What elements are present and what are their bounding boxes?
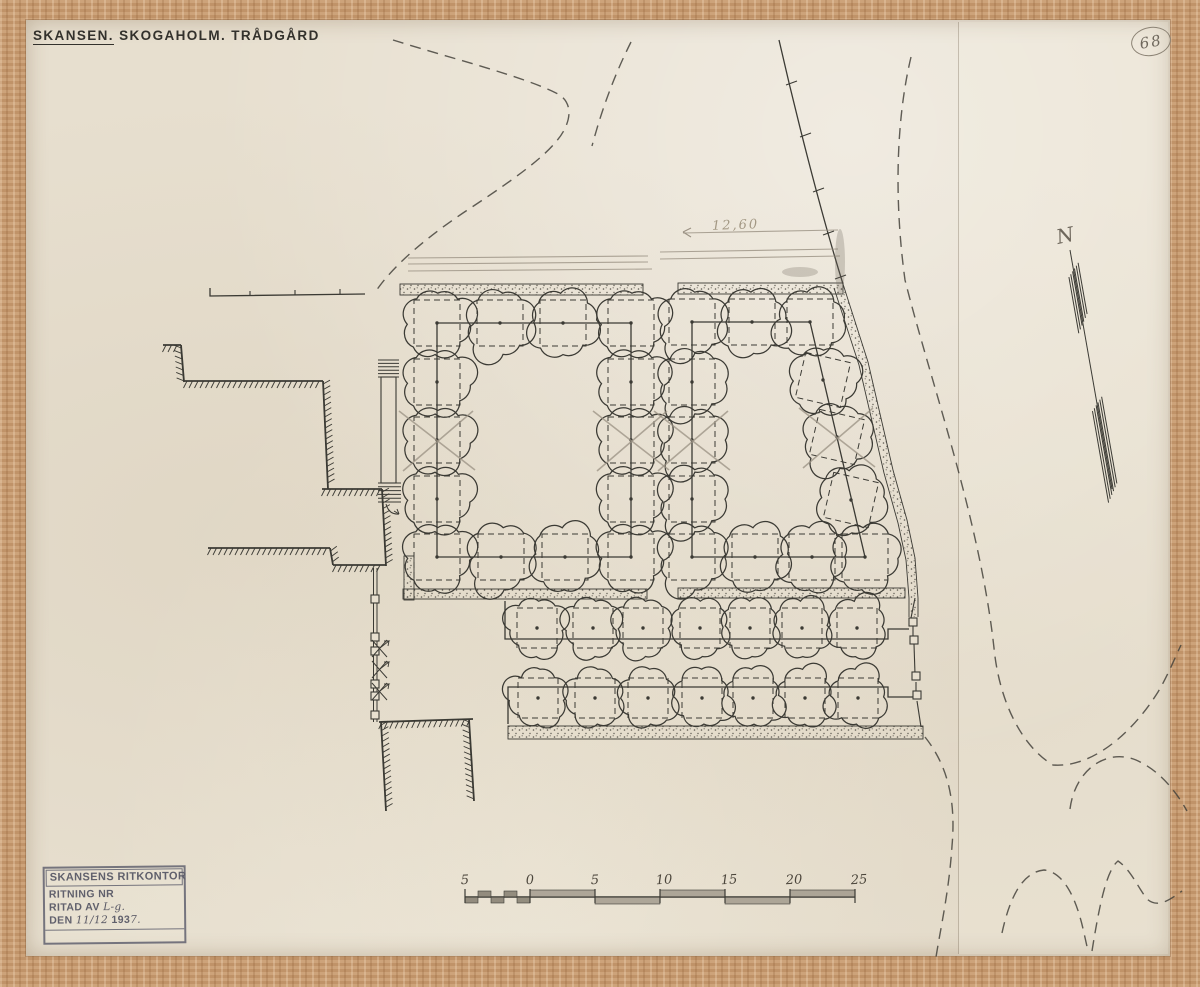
stamp-date-year-print: 193: [111, 914, 130, 926]
garden-plan-drawing: N 50510152025: [0, 0, 1200, 987]
stamp-date-day: 11/12: [76, 914, 108, 926]
stamp-empty-row: [45, 929, 184, 942]
tree: [467, 523, 536, 599]
drawing-office-stamp: SKANSENS RITKONTOR RITNING NR RITAD AV L…: [43, 865, 187, 944]
scale-label: 0: [525, 873, 534, 888]
building-walls: [163, 345, 475, 811]
tree: [817, 465, 888, 536]
tree: [403, 350, 478, 417]
stamp-date-year-hand: 7.: [130, 914, 141, 926]
tree: [563, 667, 624, 728]
scale-label: 20: [784, 872, 802, 888]
tree: [502, 668, 568, 728]
stamp-drawn-by-value: L-g.: [103, 901, 125, 913]
tree: [403, 291, 477, 358]
tree: [823, 663, 887, 728]
title-site: SKANSEN.: [33, 28, 114, 45]
tree: [529, 521, 600, 592]
scale-label: 5: [590, 873, 599, 888]
north-arrow: N: [1053, 221, 1117, 502]
scale-label: 10: [655, 872, 672, 888]
tree: [403, 467, 478, 535]
scale-label: 15: [720, 872, 737, 888]
plot-outlines: [210, 40, 921, 727]
stamp-date-label: DEN: [49, 914, 72, 926]
stamp-office-name: SKANSENS RITKONTOR: [46, 868, 183, 886]
tree: [560, 597, 623, 660]
stamp-drawing-nr-label: RITNING NR: [49, 888, 114, 901]
dimension-annotation: 12,60: [712, 217, 760, 234]
orchard-trees: [399, 287, 901, 729]
plan-number: 68: [1138, 31, 1164, 53]
tree: [466, 290, 535, 365]
scanned-garden-plan: { "title": { "main": "SKANSEN.", "rest":…: [0, 0, 1200, 987]
drawing-title: SKANSEN. SKOGAHOLM. TRÅDGÅRD: [33, 28, 320, 43]
scale-bar: 50510152025: [460, 872, 867, 904]
north-label: N: [1053, 221, 1078, 249]
tree: [772, 663, 836, 727]
tree: [403, 408, 478, 476]
tree: [617, 667, 679, 728]
tree: [672, 667, 736, 727]
stamp-drawn-by-label: RITAD AV: [49, 901, 100, 914]
tree: [503, 598, 570, 659]
tree: [771, 287, 845, 356]
scale-label: 5: [460, 873, 469, 888]
tree: [773, 596, 832, 658]
tree: [597, 291, 673, 358]
stamp-fields: RITNING NR RITAD AV L-g. DEN 11/12 1937.: [45, 886, 184, 930]
tree: [611, 597, 672, 661]
tree: [671, 598, 730, 660]
title-subject: SKOGAHOLM. TRÅDGÅRD: [119, 28, 320, 43]
tree: [831, 523, 901, 594]
tree: [658, 349, 728, 424]
tree: [597, 350, 672, 417]
tree: [826, 592, 885, 659]
scale-label: 25: [849, 872, 867, 888]
dashed-roads: [374, 40, 1187, 957]
tree: [789, 348, 862, 415]
tree: [721, 598, 780, 659]
